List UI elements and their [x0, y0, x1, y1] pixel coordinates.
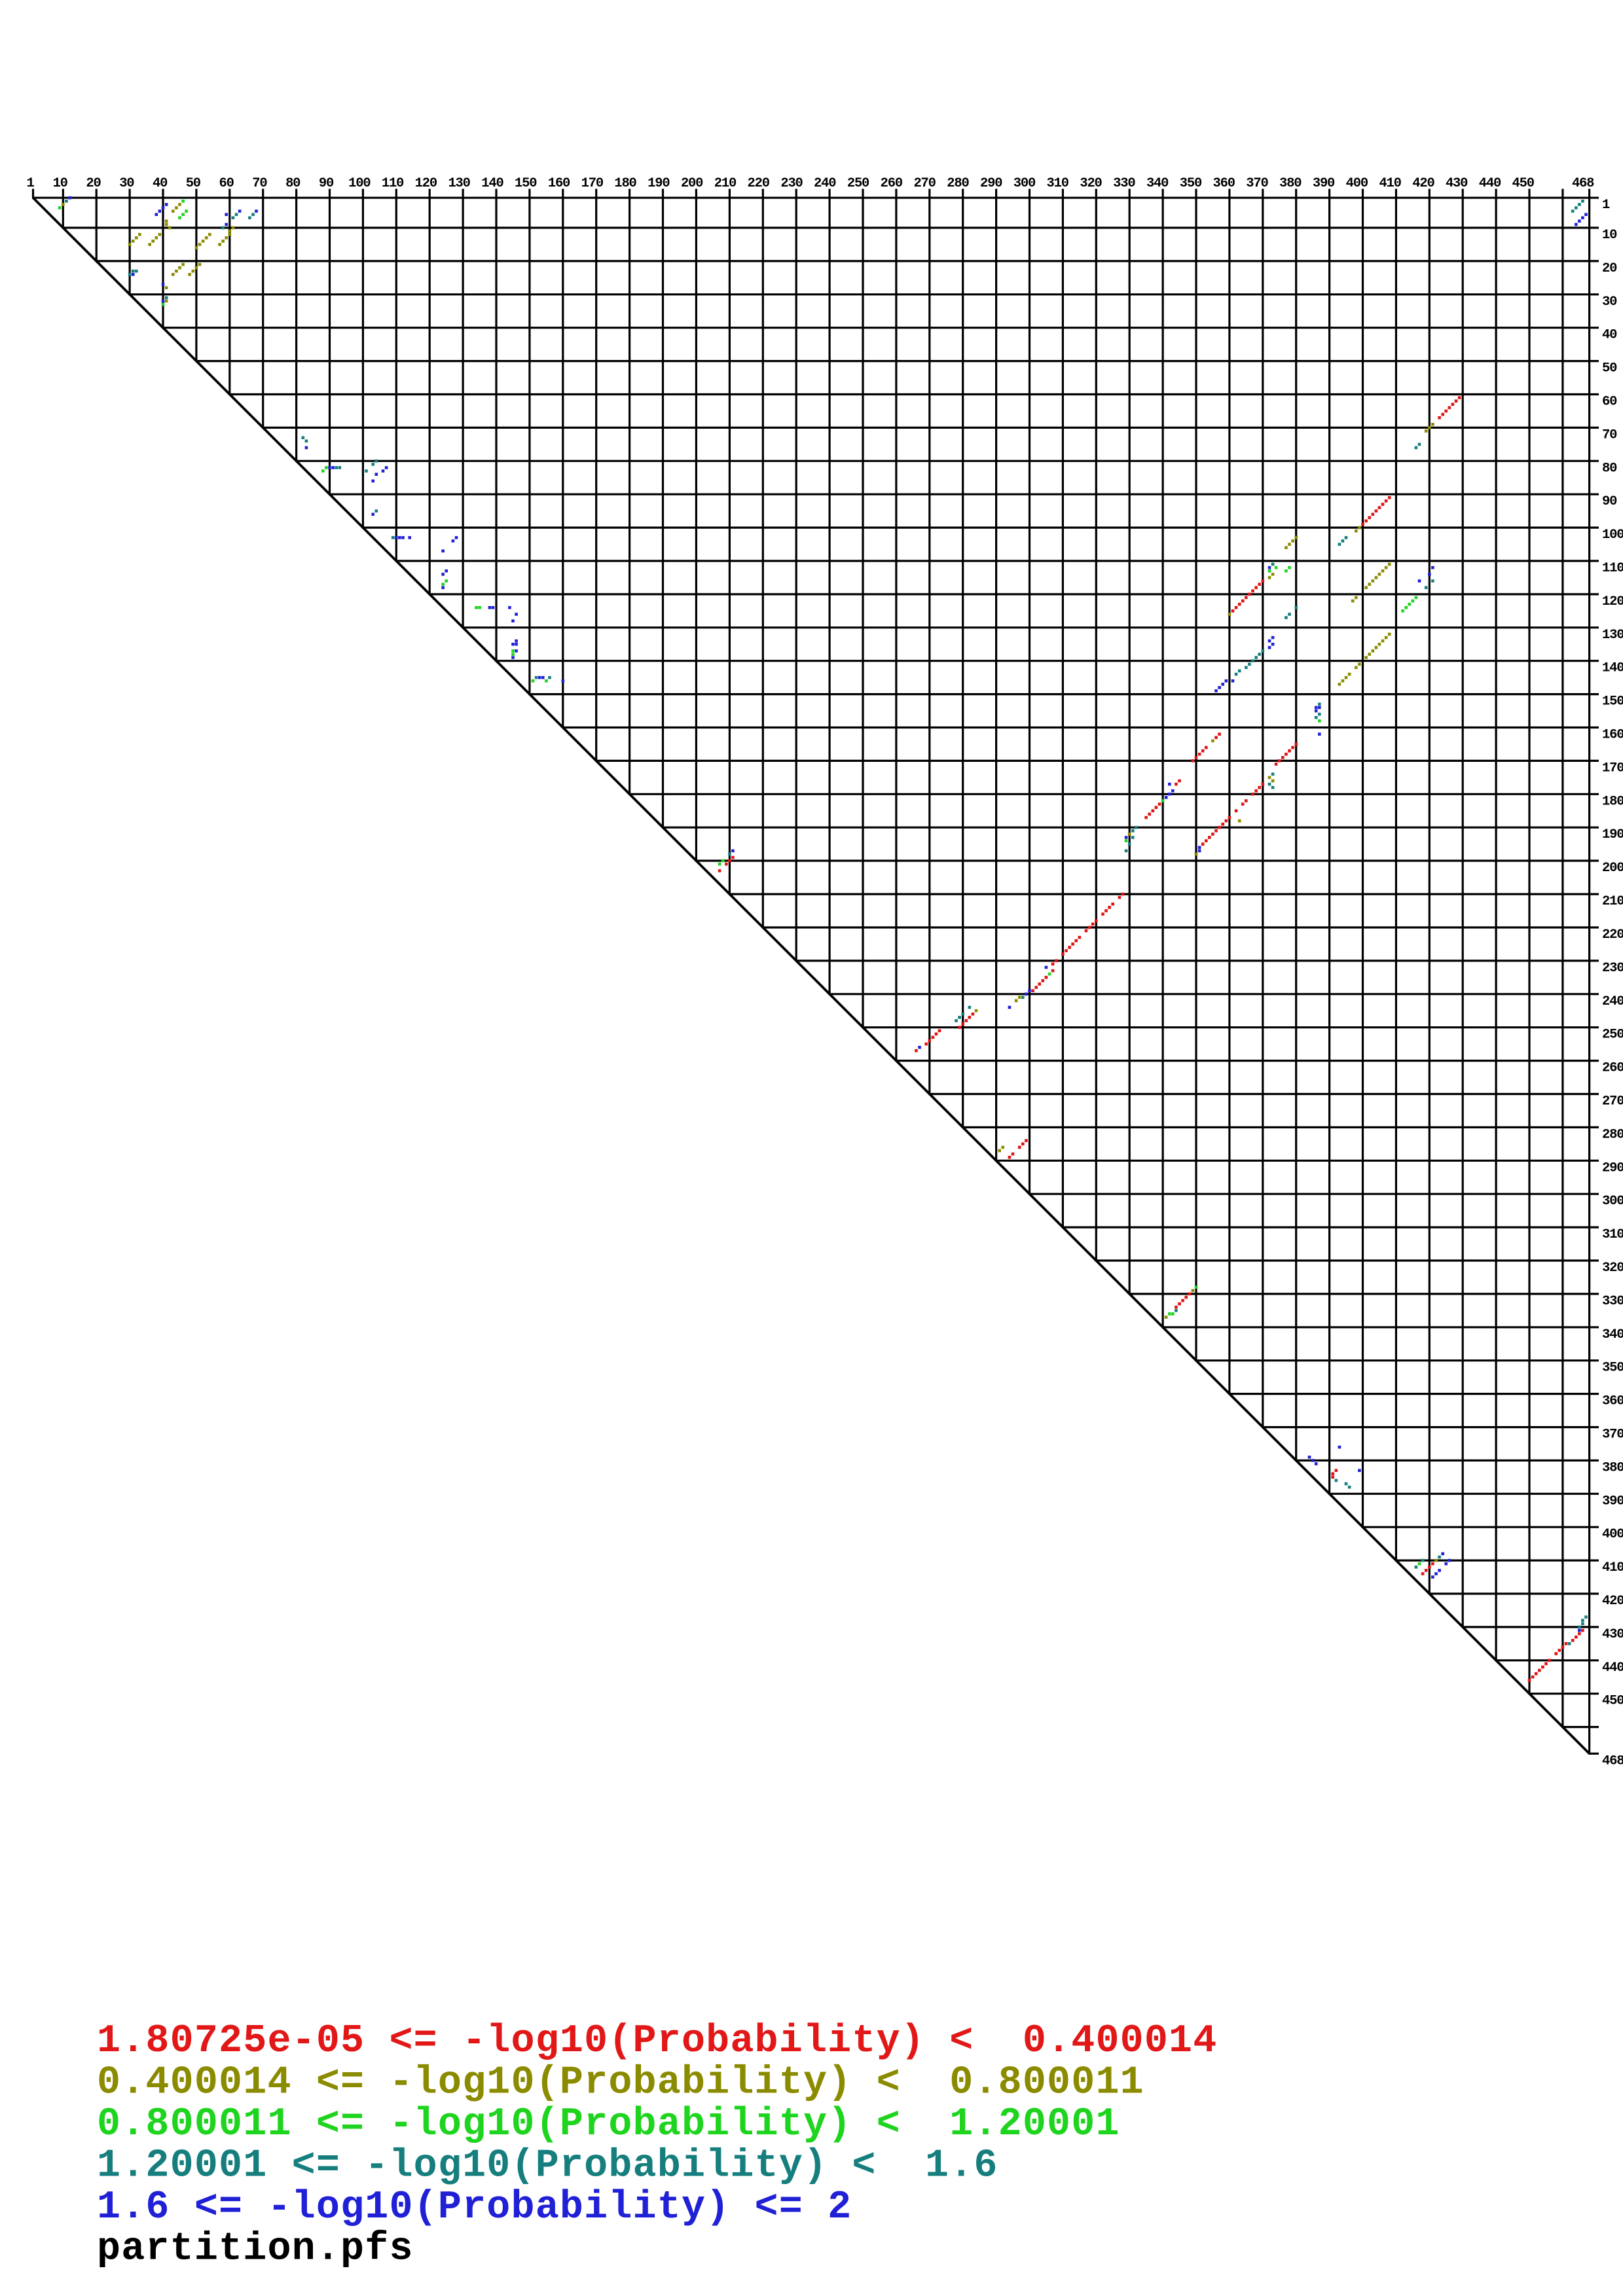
- svg-text:190: 190: [1602, 827, 1623, 842]
- svg-text:190: 190: [647, 176, 670, 191]
- svg-text:440: 440: [1602, 1660, 1623, 1676]
- svg-text:180: 180: [614, 176, 636, 191]
- svg-text:10: 10: [53, 176, 68, 191]
- svg-text:140: 140: [1602, 661, 1623, 676]
- svg-text:80: 80: [1602, 461, 1617, 476]
- svg-text:150: 150: [1602, 694, 1623, 709]
- svg-text:160: 160: [548, 176, 570, 191]
- svg-text:230: 230: [780, 176, 803, 191]
- svg-text:60: 60: [219, 176, 234, 191]
- svg-text:400: 400: [1346, 176, 1368, 191]
- svg-text:370: 370: [1602, 1427, 1623, 1443]
- svg-text:170: 170: [581, 176, 604, 191]
- svg-text:320: 320: [1602, 1261, 1623, 1276]
- svg-text:360: 360: [1213, 176, 1235, 191]
- svg-text:100: 100: [348, 176, 371, 191]
- svg-text:360: 360: [1602, 1394, 1623, 1409]
- svg-text:130: 130: [448, 176, 470, 191]
- svg-text:80: 80: [285, 176, 301, 191]
- svg-text:450: 450: [1602, 1694, 1623, 1709]
- svg-text:1: 1: [1602, 198, 1610, 213]
- svg-text:160: 160: [1602, 728, 1623, 743]
- svg-text:450: 450: [1512, 176, 1535, 191]
- svg-text:330: 330: [1113, 176, 1135, 191]
- svg-text:20: 20: [86, 176, 101, 191]
- svg-text:310: 310: [1602, 1227, 1623, 1242]
- svg-text:410: 410: [1379, 176, 1401, 191]
- svg-text:120: 120: [415, 176, 437, 191]
- svg-text:150: 150: [515, 176, 537, 191]
- svg-text:10: 10: [1602, 228, 1617, 243]
- svg-text:468: 468: [1602, 1753, 1623, 1768]
- svg-text:420: 420: [1602, 1594, 1623, 1609]
- svg-text:380: 380: [1279, 176, 1302, 191]
- svg-text:140: 140: [481, 176, 503, 191]
- svg-text:240: 240: [814, 176, 836, 191]
- svg-text:70: 70: [1602, 427, 1617, 442]
- svg-text:400: 400: [1602, 1527, 1623, 1542]
- svg-text:partition.pfs: partition.pfs: [97, 2227, 414, 2272]
- svg-text:230: 230: [1602, 961, 1623, 976]
- svg-text:30: 30: [119, 176, 134, 191]
- svg-text:270: 270: [913, 176, 936, 191]
- svg-text:280: 280: [947, 176, 969, 191]
- svg-text:250: 250: [1602, 1028, 1623, 1043]
- svg-text:220: 220: [1602, 927, 1623, 942]
- svg-text:320: 320: [1080, 176, 1102, 191]
- svg-text:300: 300: [1602, 1194, 1623, 1209]
- svg-text:170: 170: [1602, 761, 1623, 776]
- svg-text:30: 30: [1602, 295, 1617, 310]
- svg-text:430: 430: [1446, 176, 1468, 191]
- svg-text:1.6 <= -log10(Probability) <=: 1.6 <= -log10(Probability) <= 2: [97, 2185, 852, 2230]
- svg-text:410: 410: [1602, 1560, 1623, 1575]
- svg-text:430: 430: [1602, 1627, 1623, 1642]
- svg-text:50: 50: [1602, 361, 1617, 376]
- svg-text:390: 390: [1602, 1494, 1623, 1509]
- svg-text:0.800011 <= -log10(Probability: 0.800011 <= -log10(Probability) < 1.2000…: [97, 2102, 1120, 2147]
- svg-text:90: 90: [1602, 494, 1617, 509]
- svg-text:210: 210: [1602, 894, 1623, 909]
- svg-text:130: 130: [1602, 628, 1623, 643]
- svg-text:200: 200: [1602, 861, 1623, 876]
- svg-text:1.20001 <= -log10(Probability): 1.20001 <= -log10(Probability) < 1.6: [97, 2144, 998, 2189]
- svg-text:200: 200: [681, 176, 703, 191]
- svg-text:350: 350: [1180, 176, 1202, 191]
- svg-text:1.80725e-05 <= -log10(Probabil: 1.80725e-05 <= -log10(Probability) < 0.4…: [97, 2019, 1217, 2064]
- svg-text:340: 340: [1146, 176, 1169, 191]
- svg-text:40: 40: [1602, 328, 1617, 343]
- svg-text:1: 1: [26, 176, 34, 191]
- svg-text:350: 350: [1602, 1361, 1623, 1376]
- svg-text:330: 330: [1602, 1294, 1623, 1309]
- svg-text:210: 210: [714, 176, 737, 191]
- svg-text:110: 110: [1602, 561, 1623, 576]
- svg-text:300: 300: [1013, 176, 1036, 191]
- svg-text:260: 260: [881, 176, 903, 191]
- svg-text:290: 290: [980, 176, 1002, 191]
- svg-text:340: 340: [1602, 1327, 1623, 1342]
- svg-text:270: 270: [1602, 1094, 1623, 1109]
- svg-text:40: 40: [153, 176, 168, 191]
- svg-text:70: 70: [252, 176, 267, 191]
- svg-text:90: 90: [319, 176, 334, 191]
- svg-text:220: 220: [748, 176, 770, 191]
- svg-text:50: 50: [186, 176, 201, 191]
- svg-text:120: 120: [1602, 594, 1623, 609]
- svg-text:370: 370: [1246, 176, 1268, 191]
- svg-text:250: 250: [847, 176, 869, 191]
- svg-text:260: 260: [1602, 1061, 1623, 1076]
- svg-text:240: 240: [1602, 994, 1623, 1009]
- svg-text:100: 100: [1602, 528, 1623, 543]
- svg-text:468: 468: [1572, 176, 1594, 191]
- svg-text:20: 20: [1602, 261, 1617, 276]
- svg-text:380: 380: [1602, 1460, 1623, 1475]
- svg-text:310: 310: [1047, 176, 1069, 191]
- svg-text:0.400014 <= -log10(Probability: 0.400014 <= -log10(Probability) < 0.8000…: [97, 2061, 1144, 2106]
- svg-text:280: 280: [1602, 1127, 1623, 1142]
- svg-text:180: 180: [1602, 794, 1623, 809]
- svg-text:110: 110: [382, 176, 404, 191]
- svg-text:420: 420: [1412, 176, 1434, 191]
- svg-text:440: 440: [1479, 176, 1501, 191]
- svg-text:60: 60: [1602, 395, 1617, 410]
- svg-text:390: 390: [1313, 176, 1335, 191]
- svg-text:290: 290: [1602, 1160, 1623, 1175]
